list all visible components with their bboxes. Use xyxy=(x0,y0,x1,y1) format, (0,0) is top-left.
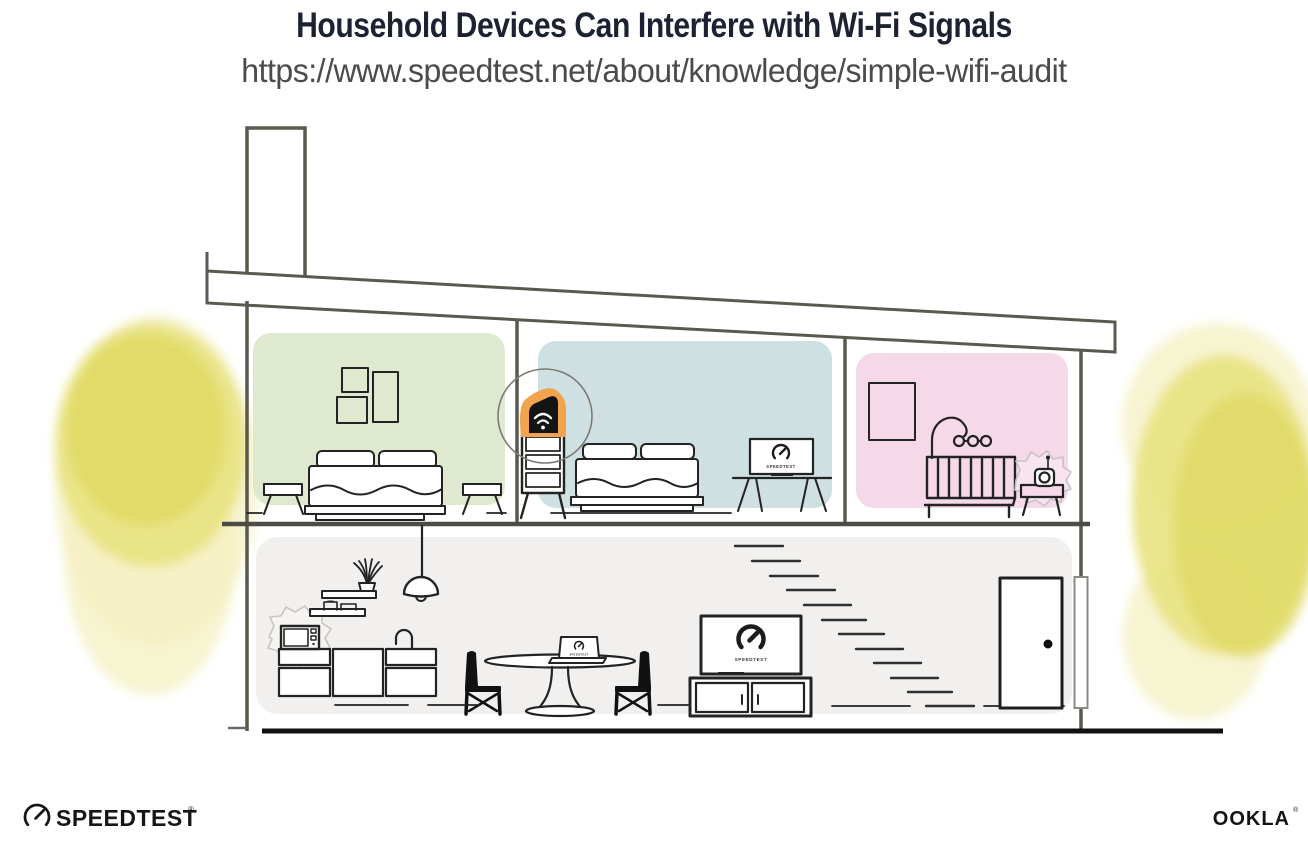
house-cutaway-illustration: SPEEDTEST SPEEDTEST SPEEDTEST SPEEDTEST … xyxy=(0,0,1308,861)
bedroom-monitor-label: SPEEDTEST xyxy=(766,464,795,469)
left-foliage-watercolor xyxy=(54,315,258,695)
downspout xyxy=(1075,577,1088,708)
ookla-logo: OOKLA ® xyxy=(1213,806,1299,830)
front-door xyxy=(1000,578,1062,708)
bed-left-bedroom xyxy=(305,451,445,520)
speedtest-trademark: ® xyxy=(188,805,194,814)
speedtest-gauge-icon xyxy=(25,805,49,825)
tv-console xyxy=(690,678,811,716)
speedtest-wordmark: SPEEDTEST xyxy=(56,805,197,831)
ookla-wordmark: OOKLA xyxy=(1213,808,1290,830)
ookla-trademark: ® xyxy=(1293,806,1299,814)
infographic-canvas: Household Devices Can Interfere with Wi-… xyxy=(0,0,1308,861)
microwave-icon xyxy=(281,626,319,649)
chimney xyxy=(247,128,305,293)
bed-middle-bedroom xyxy=(571,444,703,511)
right-foliage-watercolor xyxy=(1122,323,1308,720)
doorknob xyxy=(1044,640,1053,649)
speedtest-logo: SPEEDTEST ® xyxy=(25,805,197,831)
kitchen-cabinets xyxy=(279,649,436,696)
living-room-tv-label: SPEEDTEST xyxy=(735,657,768,662)
laptop-screen-label: SPEEDTEST xyxy=(569,653,588,657)
